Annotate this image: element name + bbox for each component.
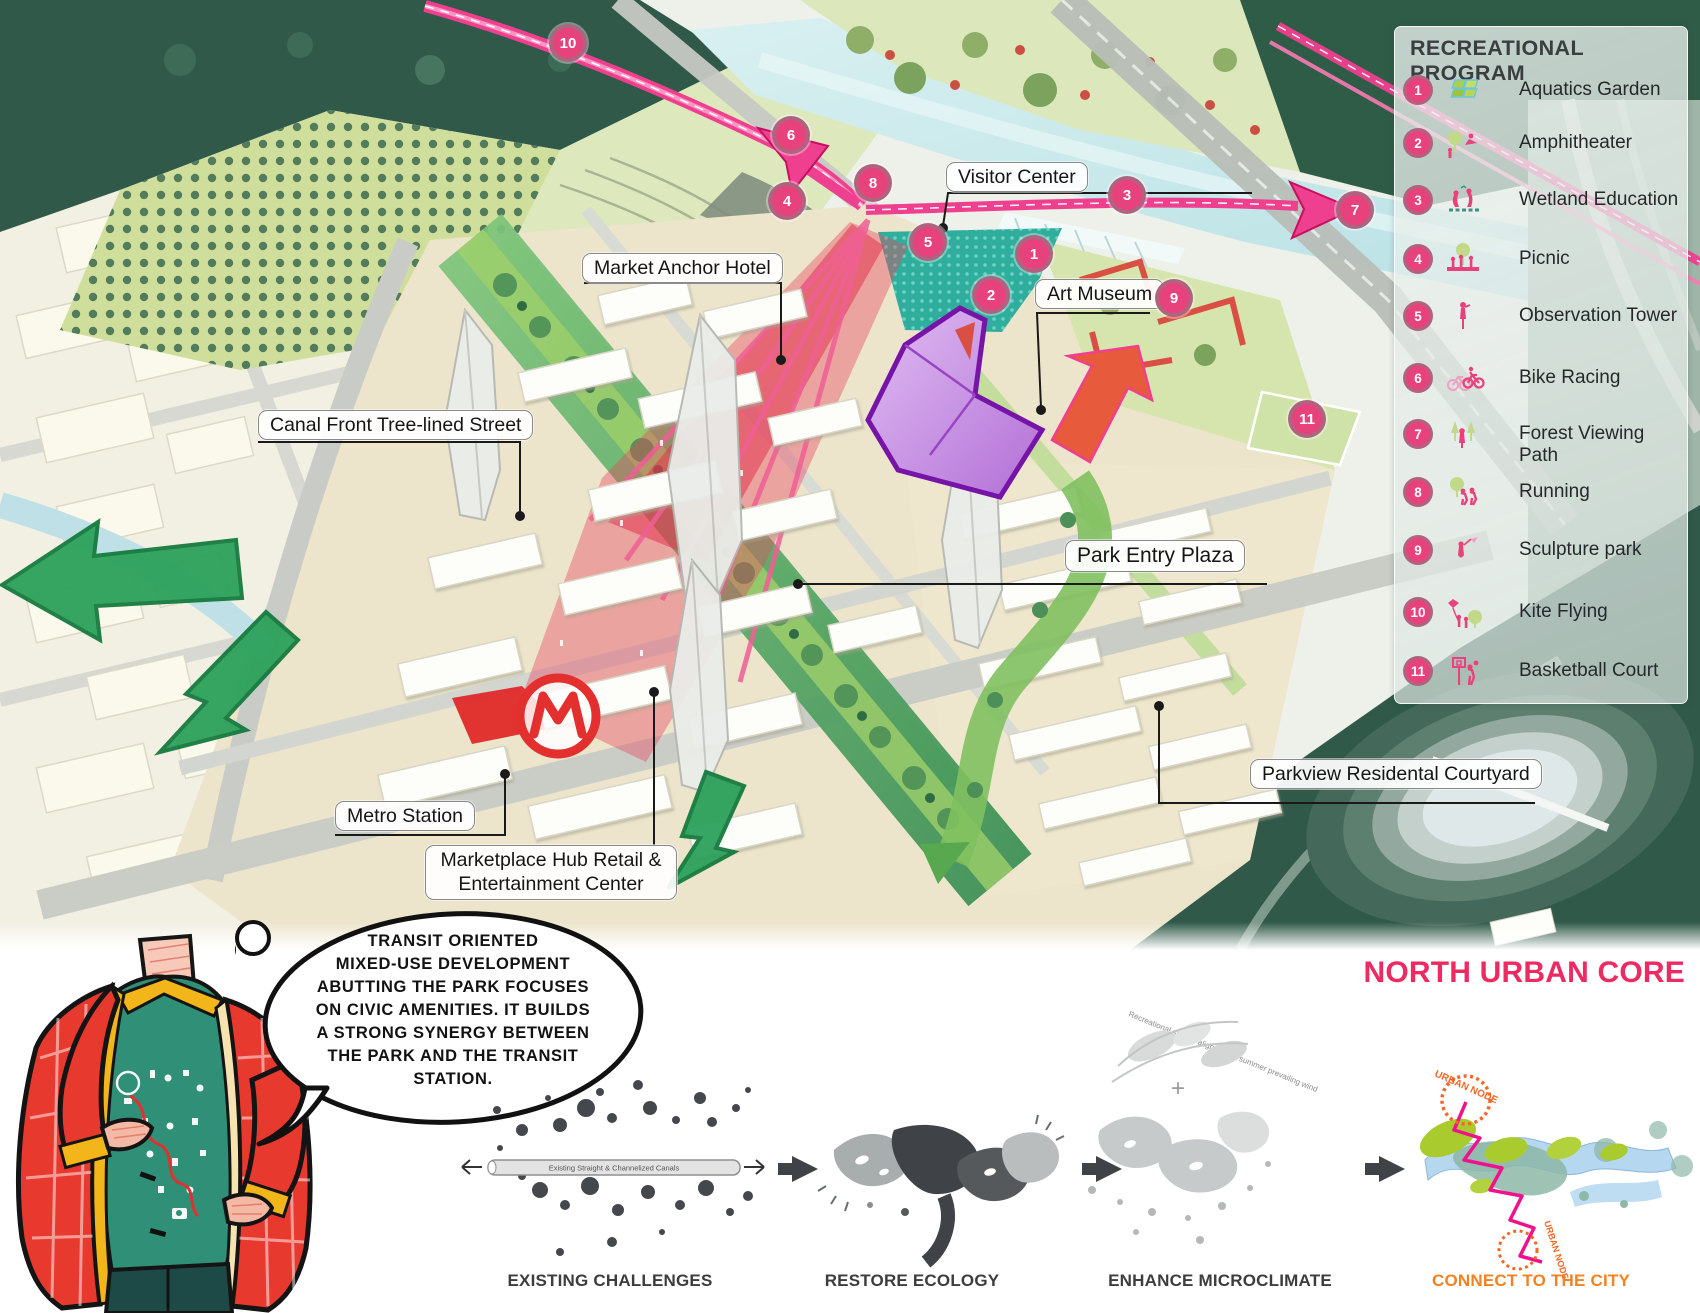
forest-viewing-path-icon (1441, 417, 1485, 451)
aquatics-garden-icon (1441, 73, 1485, 107)
diagram-restore-ecology (818, 1115, 1064, 1262)
basketball-court-icon (1441, 654, 1485, 688)
step-label-connect-to-city: CONNECT TO THE CITY (1411, 1271, 1651, 1291)
map-label-park-entry-plaza: Park Entry Plaza (1065, 540, 1245, 572)
map-marker-11: 11 (1288, 400, 1326, 438)
legend-item-basketball-court: 11 Basketball Court (1395, 654, 1687, 688)
step-label-enhance-microclimate: ENHANCE MICROCLIMATE (1100, 1271, 1340, 1291)
legend-item-picnic: 4 Picnic (1395, 242, 1687, 276)
process-diagrams: Existing Straight & Channelized Canals R… (420, 1000, 1700, 1313)
step-label-existing-challenges: EXISTING CHALLENGES (490, 1271, 730, 1291)
diagram-connect-city: URBAN NODE URBAN NODE (1414, 1069, 1693, 1281)
bike-racing-icon (1441, 361, 1485, 395)
arrow-icon (1365, 1156, 1405, 1182)
amphitheater-icon (1441, 126, 1485, 160)
arrow-icon (778, 1156, 818, 1182)
map-label-canal-front-street: Canal Front Tree-lined Street (258, 410, 533, 440)
running-icon (1441, 475, 1485, 509)
legend-item-amphitheater: 2 Amphitheater (1395, 126, 1687, 160)
canal-annotation: Existing Straight & Channelized Canals (549, 1164, 680, 1173)
legend-item-kite-flying: 10 Kite Flying (1395, 595, 1687, 629)
legend-item-bike-racing: 6 Bike Racing (1395, 361, 1687, 395)
section-title: NORTH URBAN CORE (1340, 956, 1685, 990)
diagram-existing-challenges: Existing Straight & Channelized Canals (462, 1080, 764, 1256)
map-marker-8: 8 (854, 164, 892, 202)
map-label-metro-station: Metro Station (335, 801, 475, 831)
metro-logo-icon (520, 678, 596, 754)
map-label-art-museum: Art Museum (1035, 279, 1164, 309)
legend-item-running: 8 Running (1395, 475, 1687, 509)
map-marker-3: 3 (1108, 176, 1146, 214)
picnic-icon (1441, 242, 1485, 276)
map-marker-2: 2 (972, 276, 1010, 314)
observation-tower-icon (1441, 299, 1485, 333)
step-label-restore-ecology: RESTORE ECOLOGY (792, 1271, 1032, 1291)
map-label-market-anchor-hotel: Market Anchor Hotel (582, 253, 783, 283)
plus-sign: + (1171, 1075, 1185, 1102)
wetland-education-icon (1441, 183, 1485, 217)
masterplan-poster: Visitor Center Market Anchor Hotel Art M… (0, 0, 1700, 1313)
legend-item-aquatics-garden: 1 Aquatics Garden (1395, 73, 1687, 107)
map-label-visitor-center: Visitor Center (946, 162, 1088, 192)
kite-flying-icon (1441, 595, 1485, 629)
map-marker-9: 9 (1155, 279, 1193, 317)
legend-item-forest-viewing-path: 7 Forest Viewing Path (1395, 417, 1687, 451)
sculpture-park-icon (1441, 533, 1485, 567)
diagram-enhance-microclimate: Recreational spaces aligned with summer … (1088, 1010, 1319, 1244)
map-marker-1: 1 (1015, 235, 1053, 273)
recreational-program-legend: RECREATIONAL PROGRAM 1 Aquatics Garden 2… (1394, 26, 1688, 704)
legend-item-observation-tower: 5 Observation Tower (1395, 299, 1687, 333)
legend-item-wetland-education: 3 Wetland Education (1395, 183, 1687, 217)
legend-item-sculpture-park: 9 Sculpture park (1395, 533, 1687, 567)
map-marker-6: 6 (772, 116, 810, 154)
map-marker-10: 10 (549, 24, 587, 62)
map-label-parkview-courtyard: Parkview Residental Courtyard (1250, 759, 1542, 789)
map-marker-4: 4 (768, 182, 806, 220)
map-marker-5: 5 (909, 223, 947, 261)
map-marker-7: 7 (1336, 191, 1374, 229)
